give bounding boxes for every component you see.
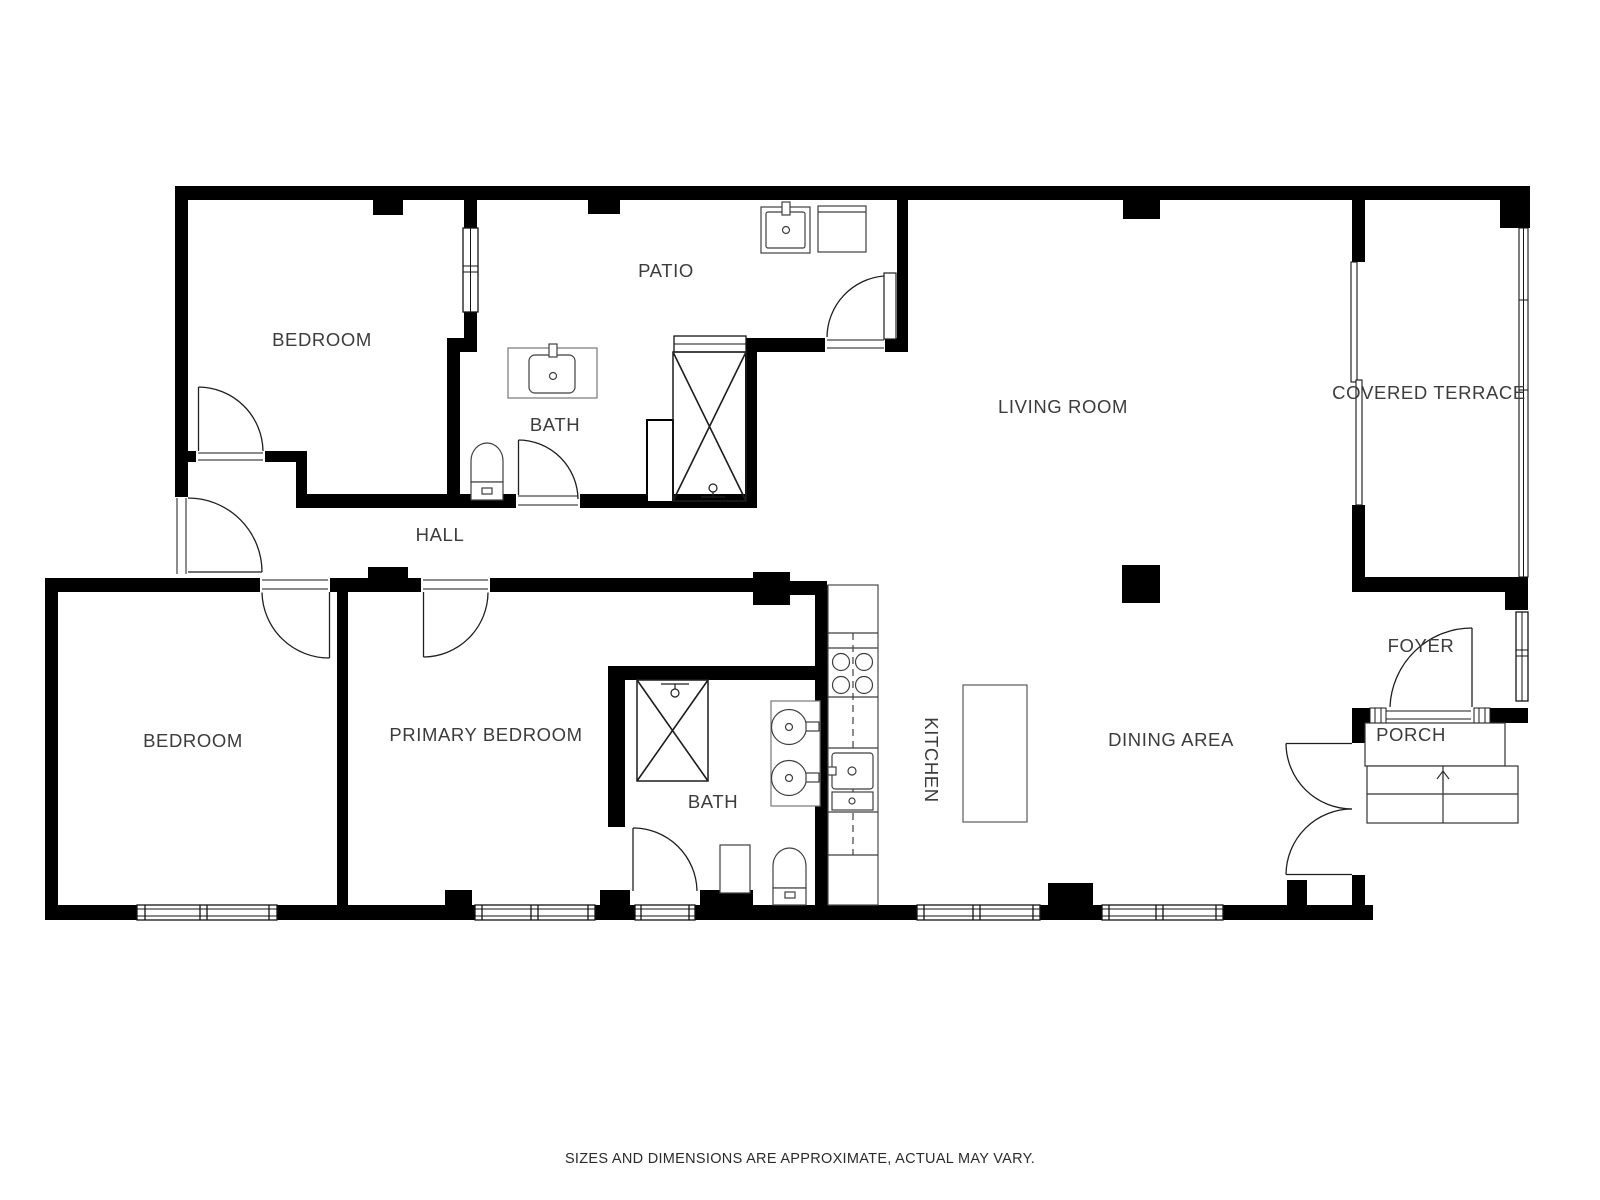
room-label-dining-area: DINING AREA [1108,729,1234,750]
room-label-living-room: LIVING ROOM [998,396,1128,417]
room-label-patio: PATIO [638,260,694,281]
door-bedroom-left [262,592,330,658]
window-bedroom-patio [463,228,478,312]
door-sill [421,576,490,593]
washer-icon [818,206,866,252]
shower-icon [673,352,746,501]
kitchen-island [963,685,1027,822]
door-primary-bedroom [424,592,489,657]
wall-segment [175,451,198,462]
room-label-kitchen: KITCHEN [921,717,942,802]
wall-column [445,890,472,905]
wall-segment [277,905,475,920]
wall-column [1123,200,1160,219]
room-label-bath-bottom: BATH [688,791,738,812]
wall-segment [464,198,477,228]
wall-column [588,200,620,214]
wall-segment [1500,186,1530,228]
entry-sidelight [1370,708,1386,723]
window-bath-top [674,336,746,352]
wall-segment [464,312,477,340]
wall-segment [757,338,827,352]
wall-segment [897,198,908,352]
wall-column [1122,565,1160,603]
room-label-primary-bedroom: PRIMARY BEDROOM [389,724,582,745]
wall-segment [45,578,262,592]
wall-segment [447,338,477,352]
wall-segment [1352,577,1505,592]
room-label-covered-terrace: COVERED TERRACE [1332,382,1526,403]
door-sill [173,497,189,576]
wall-segment [745,338,757,508]
window-bedroom-left [137,905,277,920]
room-label-bedroom-top: BEDROOM [272,329,372,350]
window-foyer [1516,612,1528,701]
wall-segment [447,350,460,508]
wall-column [373,200,403,215]
kitchen-sink-icon [828,753,873,810]
kitchen-counter [828,585,878,905]
room-label-porch: PORCH [1376,724,1446,745]
wall-segment [45,578,58,920]
shower-icon [637,680,708,781]
wall-segment [608,678,625,827]
wall-segment [608,666,815,680]
window-kitchen [917,905,1040,920]
wall-segment [1490,708,1528,723]
wall-segment [1352,186,1365,262]
door-bath-top [519,440,579,499]
sink-icon [761,202,810,253]
door-bath-bottom [633,828,697,891]
room-label-bedroom-left: BEDROOM [143,730,243,751]
wall-segment [175,462,188,498]
wall-segment [1505,577,1528,610]
toilet-icon [773,848,806,905]
wall-segment [328,578,423,592]
floor-plan-page: BEDROOM PATIO BATH HALL LIVING ROOM COVE… [0,0,1600,1200]
window-primary-bedroom [475,905,595,920]
wall-column [600,890,630,905]
wall-segment [488,578,753,592]
door-patio [827,273,896,339]
wall-segment [1352,875,1365,920]
wall-segment [1223,905,1373,920]
wall-column [753,572,790,605]
wall-segment [1040,905,1102,920]
wall-column [1287,880,1307,905]
window-bath-bottom [635,905,695,920]
door-sill [516,492,580,509]
toilet-icon [471,443,503,500]
wall-segment [175,198,188,451]
wall-segment [1352,708,1365,743]
wall-segment [175,186,1530,200]
wall-column [368,567,408,578]
door-sill [196,450,265,463]
room-label-bath-top: BATH [530,414,580,435]
cabinet-icon [720,845,750,893]
wall-segment [695,905,917,920]
door-sill [1384,706,1473,724]
door-sill [825,336,885,353]
door-sill [260,576,330,593]
door-dining-double [1286,744,1352,875]
double-vanity-icon [771,701,820,806]
floor-plan-image: BEDROOM PATIO BATH HALL LIVING ROOM COVE… [0,0,1600,1200]
wall-segment [337,592,348,905]
window-dining [1102,905,1223,920]
wall-segment [45,905,137,920]
room-label-hall: HALL [416,524,465,545]
wall-segment [595,905,635,920]
entry-sidelight [1474,708,1490,723]
knee-wall [647,420,673,502]
room-label-foyer: FOYER [1388,635,1455,656]
vanity-sink-icon [508,344,597,398]
door-hall-side [188,498,262,572]
door-bedroom-top [199,387,264,451]
walls [45,186,1530,920]
disclaimer-text: SIZES AND DIMENSIONS ARE APPROXIMATE, AC… [565,1151,1035,1167]
wall-column [1048,883,1093,905]
